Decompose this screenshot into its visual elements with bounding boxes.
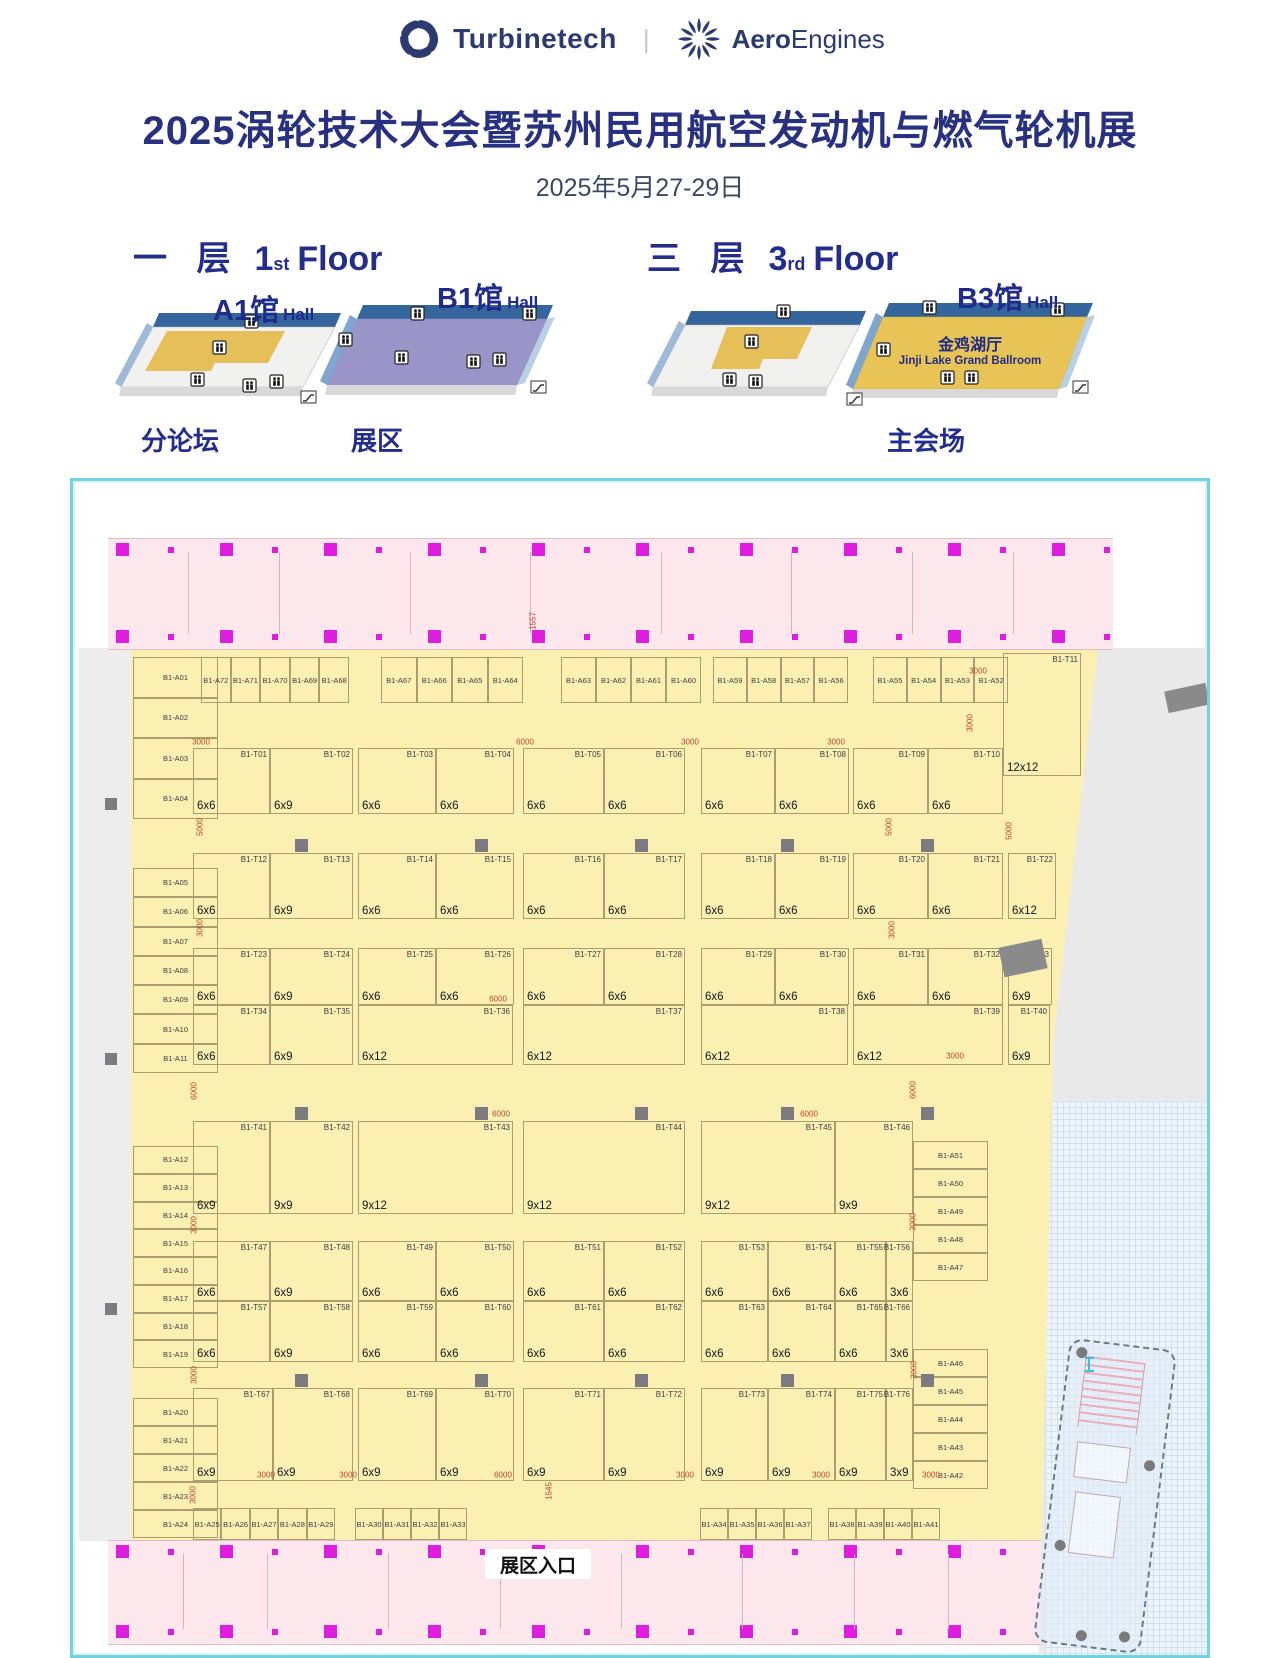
booth-B1-T30: B1-T306x6 xyxy=(775,948,849,1005)
booth-B1-A53: B1-A53 xyxy=(941,657,975,703)
structural-column xyxy=(844,543,857,556)
booth-id-label: B1-T31 xyxy=(899,950,925,959)
booth-id-label: B1-T26 xyxy=(485,950,511,959)
booth-B1-T15: B1-T156x6 xyxy=(436,853,514,919)
booth-size-label: 6x9 xyxy=(274,1051,293,1063)
dimension-label: 3000 xyxy=(946,1052,964,1061)
dimension-label: 5000 xyxy=(196,818,205,836)
booth-id-label: B1-T17 xyxy=(656,855,682,864)
booth-size-label: 6x6 xyxy=(527,800,546,812)
booth-id-label: B1-T52 xyxy=(656,1243,682,1252)
booth-id-label: B1-T30 xyxy=(820,950,846,959)
dimension-label: 6000 xyxy=(492,1110,510,1119)
structural-column xyxy=(896,547,902,553)
structural-column xyxy=(948,1545,961,1558)
column-marker xyxy=(921,1374,934,1387)
booth-B1-T49: B1-T496x6 xyxy=(358,1241,436,1301)
booth-B1-A23: B1-A23 xyxy=(133,1482,218,1510)
booth-B1-T44: B1-T449x12 xyxy=(523,1121,685,1214)
booth-B1-T10: B1-T106x6 xyxy=(928,748,1003,814)
booth-B1-A54: B1-A54 xyxy=(907,657,941,703)
structural-column xyxy=(1000,1549,1006,1555)
dimension-label: 5000 xyxy=(885,818,894,836)
structural-column xyxy=(1052,630,1065,643)
booth-B1-T60: B1-T606x6 xyxy=(436,1301,514,1362)
dimension-label: 3000 xyxy=(190,1216,199,1234)
booth-size-label: 9x12 xyxy=(362,1200,387,1212)
hall-a1-suffix: Hall xyxy=(283,305,314,324)
booth-B1-T35: B1-T356x9 xyxy=(270,1005,353,1065)
booth-size-label: 3x6 xyxy=(890,1348,909,1360)
booth-B1-T21: B1-T216x6 xyxy=(928,853,1003,919)
hall3a-apron xyxy=(651,387,828,396)
booth-id-label: B1-T08 xyxy=(820,750,846,759)
booth-size-label: 6x9 xyxy=(1012,991,1031,1003)
booth-id-label: B1-T47 xyxy=(241,1243,267,1252)
booth-B1-T27: B1-T276x6 xyxy=(523,948,604,1005)
booth-B1-T39: B1-T396x12 xyxy=(853,1005,1003,1065)
page-title: 2025涡轮技术大会暨苏州民用航空发动机与燃气轮机展 xyxy=(0,98,1280,156)
booth-size-label: 3x9 xyxy=(890,1467,909,1479)
booth-id-label: B1-T60 xyxy=(485,1303,511,1312)
booth-id-label: B1-T37 xyxy=(656,1007,682,1016)
booth-size-label: 6x6 xyxy=(197,1287,216,1299)
booth-size-label: 6x6 xyxy=(779,800,798,812)
dimension-label: 5000 xyxy=(1005,822,1014,840)
booth-B1-T76: B1-T763x9 xyxy=(886,1388,913,1481)
booth-size-label: 6x12 xyxy=(362,1051,387,1063)
booth-size-label: 6x12 xyxy=(857,1051,882,1063)
restroom-icon xyxy=(339,333,352,346)
booth-id-label: B1-T27 xyxy=(575,950,601,959)
structural-column xyxy=(480,634,486,640)
structural-column xyxy=(480,1629,486,1635)
structural-column xyxy=(844,1545,857,1558)
structural-column xyxy=(428,630,441,643)
structural-column xyxy=(1104,634,1110,640)
elevator-icon xyxy=(965,371,978,384)
booth-id-label: B1-T43 xyxy=(484,1123,510,1132)
booth-size-label: 6x6 xyxy=(527,905,546,917)
wall-line xyxy=(854,1554,855,1629)
restroom-icon xyxy=(243,379,256,392)
structural-column xyxy=(688,1629,694,1635)
booth-B1-T31: B1-T316x6 xyxy=(853,948,928,1005)
structural-column xyxy=(116,630,129,643)
booth-B1-A58: B1-A58 xyxy=(747,657,781,703)
column-marker xyxy=(781,839,794,852)
elevator-icon xyxy=(749,375,762,388)
turbinetech-logo: Turbinetech xyxy=(395,15,617,63)
caption-subforum: 分论坛 xyxy=(141,421,219,458)
booth-id-label: B1-T10 xyxy=(974,750,1000,759)
booth-id-label: B1-T13 xyxy=(324,855,350,864)
wall-line xyxy=(661,552,662,634)
booth-id-label: B1-T28 xyxy=(656,950,682,959)
booth-B1-T64: B1-T646x6 xyxy=(768,1301,835,1362)
structural-column xyxy=(1000,634,1006,640)
booth-B1-A51: B1-A51 xyxy=(913,1141,988,1169)
booth-id-label: B1-T19 xyxy=(820,855,846,864)
structural-column xyxy=(168,634,174,640)
elevator-icon xyxy=(493,353,506,366)
structural-column xyxy=(376,634,382,640)
booth-B1-A66: B1-A66 xyxy=(417,657,453,703)
booth-B1-A36: B1-A36 xyxy=(756,1508,784,1540)
booth-id-label: B1-T11 xyxy=(1052,655,1078,664)
structural-column xyxy=(272,1549,278,1555)
booth-size-label: 6x9 xyxy=(277,1467,296,1479)
booth-id-label: B1-T71 xyxy=(575,1390,601,1399)
dimension-label: 3000 xyxy=(257,1471,275,1480)
structural-column xyxy=(584,547,590,553)
booth-id-label: B1-T67 xyxy=(244,1390,270,1399)
booth-size-label: 6x12 xyxy=(527,1051,552,1063)
booth-B1-T02: B1-T026x9 xyxy=(270,748,353,814)
booth-size-label: 6x9 xyxy=(274,905,293,917)
booth-B1-A72: B1-A72 xyxy=(201,657,231,703)
hall-b3-name: B3馆 xyxy=(957,283,1023,315)
booth-B1-A41: B1-A41 xyxy=(912,1508,940,1540)
booth-B1-T23: B1-T236x6 xyxy=(193,948,270,1005)
top-corridor xyxy=(108,538,1113,650)
booth-size-label: 6x6 xyxy=(362,1348,381,1360)
wall-line xyxy=(791,552,792,634)
booth-id-label: B1-T63 xyxy=(739,1303,765,1312)
booth-B1-A50: B1-A50 xyxy=(913,1169,988,1197)
booth-B1-T24: B1-T246x9 xyxy=(270,948,353,1005)
restroom-icon xyxy=(411,307,424,320)
booth-B1-A57: B1-A57 xyxy=(781,657,815,703)
b3-apron xyxy=(851,389,1059,398)
wall-line xyxy=(267,1554,268,1629)
booth-id-label: B1-T54 xyxy=(806,1243,832,1252)
booth-B1-T55: B1-T556x6 xyxy=(835,1241,886,1301)
booth-size-label: 6x6 xyxy=(772,1348,791,1360)
booth-id-label: B1-T05 xyxy=(575,750,601,759)
booth-B1-T70: B1-T706x9 xyxy=(436,1388,514,1481)
structural-column xyxy=(376,547,382,553)
booth-B1-A33: B1-A33 xyxy=(439,1508,467,1540)
booth-B1-T25: B1-T256x6 xyxy=(358,948,436,1005)
booth-id-label: B1-T61 xyxy=(575,1303,601,1312)
booth-size-label: 6x12 xyxy=(705,1051,730,1063)
column-marker xyxy=(475,1107,488,1120)
booth-size-label: 6x6 xyxy=(857,905,876,917)
structural-column xyxy=(116,1545,129,1558)
restroom-icon xyxy=(191,373,204,386)
booth-id-label: B1-T76 xyxy=(884,1390,910,1399)
booth-B1-T57: B1-T576x6 xyxy=(193,1301,270,1362)
floor-diagrams: 一 层1stFloor xyxy=(0,225,1280,475)
elevator-icon xyxy=(213,341,226,354)
structural-column xyxy=(324,1545,337,1558)
booth-size-label: 12x12 xyxy=(1007,762,1038,774)
booth-size-label: 6x6 xyxy=(705,800,724,812)
wall-line xyxy=(183,1554,184,1629)
booth-B1-A62: B1-A62 xyxy=(596,657,631,703)
booth-B1-T18: B1-T186x6 xyxy=(701,853,775,919)
booth-id-label: B1-T65 xyxy=(857,1303,883,1312)
booth-B1-T46: B1-T469x9 xyxy=(835,1121,913,1214)
booth-id-label: B1-T73 xyxy=(739,1390,765,1399)
booth-size-label: 6x6 xyxy=(932,800,951,812)
structural-column xyxy=(792,1549,798,1555)
booth-size-label: 6x6 xyxy=(839,1287,858,1299)
booth-id-label: B1-T69 xyxy=(407,1390,433,1399)
booth-id-label: B1-T59 xyxy=(407,1303,433,1312)
booth-id-label: B1-T48 xyxy=(324,1243,350,1252)
booth-B1-A47: B1-A47 xyxy=(913,1253,988,1281)
booth-B1-T04: B1-T046x6 xyxy=(436,748,514,814)
booth-size-label: 6x6 xyxy=(197,1348,216,1360)
booth-id-label: B1-T49 xyxy=(407,1243,433,1252)
booth-B1-T28: B1-T286x6 xyxy=(604,948,685,1005)
booth-size-label: 6x9 xyxy=(1012,1051,1031,1063)
structural-column xyxy=(844,630,857,643)
structural-column xyxy=(324,1625,337,1638)
booth-id-label: B1-T16 xyxy=(575,855,601,864)
restroom-icon xyxy=(941,371,954,384)
booth-B1-A65: B1-A65 xyxy=(452,657,488,703)
aeroengines-starburst-icon xyxy=(676,16,722,62)
booth-id-label: B1-T12 xyxy=(241,855,267,864)
escalator-icon xyxy=(847,393,862,405)
booth-id-label: B1-T38 xyxy=(819,1007,845,1016)
structural-column xyxy=(116,543,129,556)
dimension-label: 6000 xyxy=(494,1471,512,1480)
structural-column xyxy=(480,547,486,553)
booth-size-label: 6x9 xyxy=(608,1467,627,1479)
dimension-label: 3000 xyxy=(969,667,987,676)
booth-size-label: 6x6 xyxy=(362,905,381,917)
turbinetech-swirl-icon xyxy=(395,15,443,63)
booth-id-label: B1-T74 xyxy=(806,1390,832,1399)
booth-B1-A63: B1-A63 xyxy=(561,657,596,703)
booth-size-label: 9x12 xyxy=(705,1200,730,1212)
booth-B1-T17: B1-T176x6 xyxy=(604,853,685,919)
booth-size-label: 6x6 xyxy=(608,1348,627,1360)
structural-column xyxy=(1000,547,1006,553)
escalator-icon xyxy=(301,391,316,403)
booth-B1-T13: B1-T136x9 xyxy=(270,853,353,919)
booth-B1-T07: B1-T076x6 xyxy=(701,748,775,814)
booth-id-label: B1-T42 xyxy=(324,1123,350,1132)
booth-B1-T56: B1-T563x6 xyxy=(886,1241,913,1301)
structural-column xyxy=(792,634,798,640)
structural-column xyxy=(168,547,174,553)
brand-aeroengines: AeroEngines xyxy=(732,24,885,55)
brand-engines: Engines xyxy=(791,24,885,54)
booth-B1-A61: B1-A61 xyxy=(631,657,666,703)
booth-B1-T16: B1-T166x6 xyxy=(523,853,604,919)
booth-B1-T48: B1-T486x9 xyxy=(270,1241,353,1301)
structural-column xyxy=(168,1629,174,1635)
booth-B1-T36: B1-T366x12 xyxy=(358,1005,513,1065)
booth-B1-A60: B1-A60 xyxy=(666,657,701,703)
booth-B1-T19: B1-T196x6 xyxy=(775,853,849,919)
structural-column xyxy=(272,1629,278,1635)
booth-size-label: 3x6 xyxy=(890,1287,909,1299)
booth-size-label: 6x9 xyxy=(362,1467,381,1479)
structural-column xyxy=(532,543,545,556)
structural-column xyxy=(428,543,441,556)
hall-a1-label: A1馆Hall xyxy=(213,287,314,329)
booth-B1-T06: B1-T066x6 xyxy=(604,748,685,814)
booth-size-label: 6x6 xyxy=(608,905,627,917)
caption-exhibition: 展区 xyxy=(351,421,403,458)
booth-B1-T34: B1-T346x6 xyxy=(193,1005,270,1065)
booth-size-label: 6x6 xyxy=(857,800,876,812)
booth-B1-T43: B1-T439x12 xyxy=(358,1121,513,1214)
ballroom-zh: 金鸡湖厅 xyxy=(880,337,1060,355)
booth-B1-A70: B1-A70 xyxy=(260,657,290,703)
wall-line xyxy=(188,552,189,634)
booth-size-label: 6x6 xyxy=(197,800,216,812)
caption-main-venue: 主会场 xyxy=(887,421,965,458)
third-floor-diagram: 三 层3rdFloor B3馆Hall 金鸡湖 xyxy=(625,225,1145,475)
dimension-label: 3000 xyxy=(192,738,210,747)
booth-size-label: 6x6 xyxy=(362,800,381,812)
structural-column xyxy=(220,630,233,643)
booth-B1-A02: B1-A02 xyxy=(133,698,218,739)
booth-B1-A46: B1-A46 xyxy=(913,1349,988,1377)
booth-B1-T50: B1-T506x6 xyxy=(436,1241,514,1301)
hall3a-back-wall xyxy=(685,311,866,325)
booth-id-label: B1-T51 xyxy=(575,1243,601,1252)
booth-B1-T54: B1-T546x6 xyxy=(768,1241,835,1301)
booth-B1-A44: B1-A44 xyxy=(913,1405,988,1433)
booth-B1-T41: B1-T416x9 xyxy=(193,1121,270,1214)
dimension-label: 6000 xyxy=(909,1081,918,1099)
booth-id-label: B1-T18 xyxy=(746,855,772,864)
booth-id-label: B1-T20 xyxy=(899,855,925,864)
booth-id-label: B1-T56 xyxy=(884,1243,910,1252)
structural-column xyxy=(792,547,798,553)
structural-column xyxy=(636,1545,649,1558)
booth-B1-A43: B1-A43 xyxy=(913,1433,988,1461)
column-marker xyxy=(295,1374,308,1387)
column-marker xyxy=(295,839,308,852)
booth-B1-A40: B1-A40 xyxy=(884,1508,912,1540)
column-marker xyxy=(475,1374,488,1387)
booth-id-label: B1-T46 xyxy=(884,1123,910,1132)
booth-size-label: 6x6 xyxy=(608,991,627,1003)
booth-id-label: B1-T39 xyxy=(974,1007,1000,1016)
booth-B1-A64: B1-A64 xyxy=(488,657,524,703)
structural-column xyxy=(532,1625,545,1638)
booth-id-label: B1-T29 xyxy=(746,950,772,959)
structural-column xyxy=(584,1629,590,1635)
booth-size-label: 6x6 xyxy=(705,1287,724,1299)
column-marker xyxy=(921,839,934,852)
structural-column xyxy=(636,1625,649,1638)
booth-size-label: 6x6 xyxy=(608,1287,627,1299)
booth-B1-T66: B1-T663x6 xyxy=(886,1301,913,1362)
dimension-label: 3000 xyxy=(339,1471,357,1480)
booth-size-label: 6x6 xyxy=(772,1287,791,1299)
booth-B1-T65: B1-T656x6 xyxy=(835,1301,886,1362)
dimension-label: 3000 xyxy=(190,1366,199,1384)
booth-B1-T05: B1-T056x6 xyxy=(523,748,604,814)
booth-id-label: B1-T34 xyxy=(241,1007,267,1016)
b1-apron xyxy=(325,385,517,395)
column-marker xyxy=(635,1374,648,1387)
booth-B1-T29: B1-T296x6 xyxy=(701,948,775,1005)
booth-B1-A71: B1-A71 xyxy=(231,657,261,703)
structural-column xyxy=(844,1625,857,1638)
structural-column xyxy=(688,547,694,553)
booth-size-label: 6x6 xyxy=(440,991,459,1003)
booth-B1-T32: B1-T326x6 xyxy=(928,948,1003,1005)
ballroom-label: 金鸡湖厅 Jinji Lake Grand Ballroom xyxy=(880,337,1060,369)
booth-size-label: 6x6 xyxy=(705,905,724,917)
booth-B1-T58: B1-T586x9 xyxy=(270,1301,353,1362)
structural-column xyxy=(376,1629,382,1635)
booth-B1-T37: B1-T376x12 xyxy=(523,1005,685,1065)
dimension-label: 6000 xyxy=(489,995,507,1004)
booth-size-label: 6x6 xyxy=(932,905,951,917)
booth-B1-T03: B1-T036x6 xyxy=(358,748,436,814)
booth-size-label: 6x6 xyxy=(440,800,459,812)
booth-id-label: B1-T24 xyxy=(324,950,350,959)
structural-column xyxy=(948,1625,961,1638)
wall-line xyxy=(742,1554,743,1629)
booth-B1-T40: B1-T406x9 xyxy=(1008,1005,1050,1065)
structural-column xyxy=(896,1629,902,1635)
booth-B1-A34: B1-A34 xyxy=(700,1508,728,1540)
dimension-label: 1545 xyxy=(545,1482,554,1500)
booth-id-label: B1-T07 xyxy=(746,750,772,759)
dimension-label: 3000 xyxy=(888,921,897,939)
booth-id-label: B1-T62 xyxy=(656,1303,682,1312)
booth-size-label: 6x9 xyxy=(274,800,293,812)
booth-size-label: 6x6 xyxy=(779,991,798,1003)
wall-line xyxy=(621,1554,622,1629)
booth-id-label: B1-T50 xyxy=(485,1243,511,1252)
wall-line xyxy=(912,552,913,634)
column-marker xyxy=(781,1107,794,1120)
booth-B1-A59: B1-A59 xyxy=(713,657,747,703)
restroom-icon xyxy=(777,305,790,318)
booth-B1-T73: B1-T736x9 xyxy=(701,1388,768,1481)
dimension-label: 3000 xyxy=(922,1471,940,1480)
booth-B1-T75: B1-T756x9 xyxy=(835,1388,886,1481)
booth-B1-A69: B1-A69 xyxy=(290,657,320,703)
booth-id-label: B1-T66 xyxy=(884,1303,910,1312)
booth-id-label: B1-T55 xyxy=(857,1243,883,1252)
booth-size-label: 6x6 xyxy=(197,991,216,1003)
booth-B1-T47: B1-T476x6 xyxy=(193,1241,270,1301)
booth-size-label: 6x9 xyxy=(197,1467,216,1479)
booth-B1-A39: B1-A39 xyxy=(856,1508,884,1540)
hall-b3-label: B3馆Hall xyxy=(957,275,1058,317)
booth-size-label: 6x9 xyxy=(705,1467,724,1479)
restroom-icon xyxy=(923,301,936,314)
booth-size-label: 6x6 xyxy=(705,991,724,1003)
booth-id-label: B1-T70 xyxy=(485,1390,511,1399)
structural-column xyxy=(376,1549,382,1555)
booth-size-label: 6x6 xyxy=(362,1287,381,1299)
booth-B1-T71: B1-T716x9 xyxy=(523,1388,604,1481)
booth-size-label: 9x9 xyxy=(839,1200,858,1212)
booth-B1-A38: B1-A38 xyxy=(828,1508,856,1540)
booth-B1-T09: B1-T096x6 xyxy=(853,748,928,814)
booth-B1-A48: B1-A48 xyxy=(913,1225,988,1253)
dimension-label: 1557 xyxy=(529,612,538,630)
booth-size-label: 9x9 xyxy=(274,1200,293,1212)
booth-B1-A49: B1-A49 xyxy=(913,1197,988,1225)
